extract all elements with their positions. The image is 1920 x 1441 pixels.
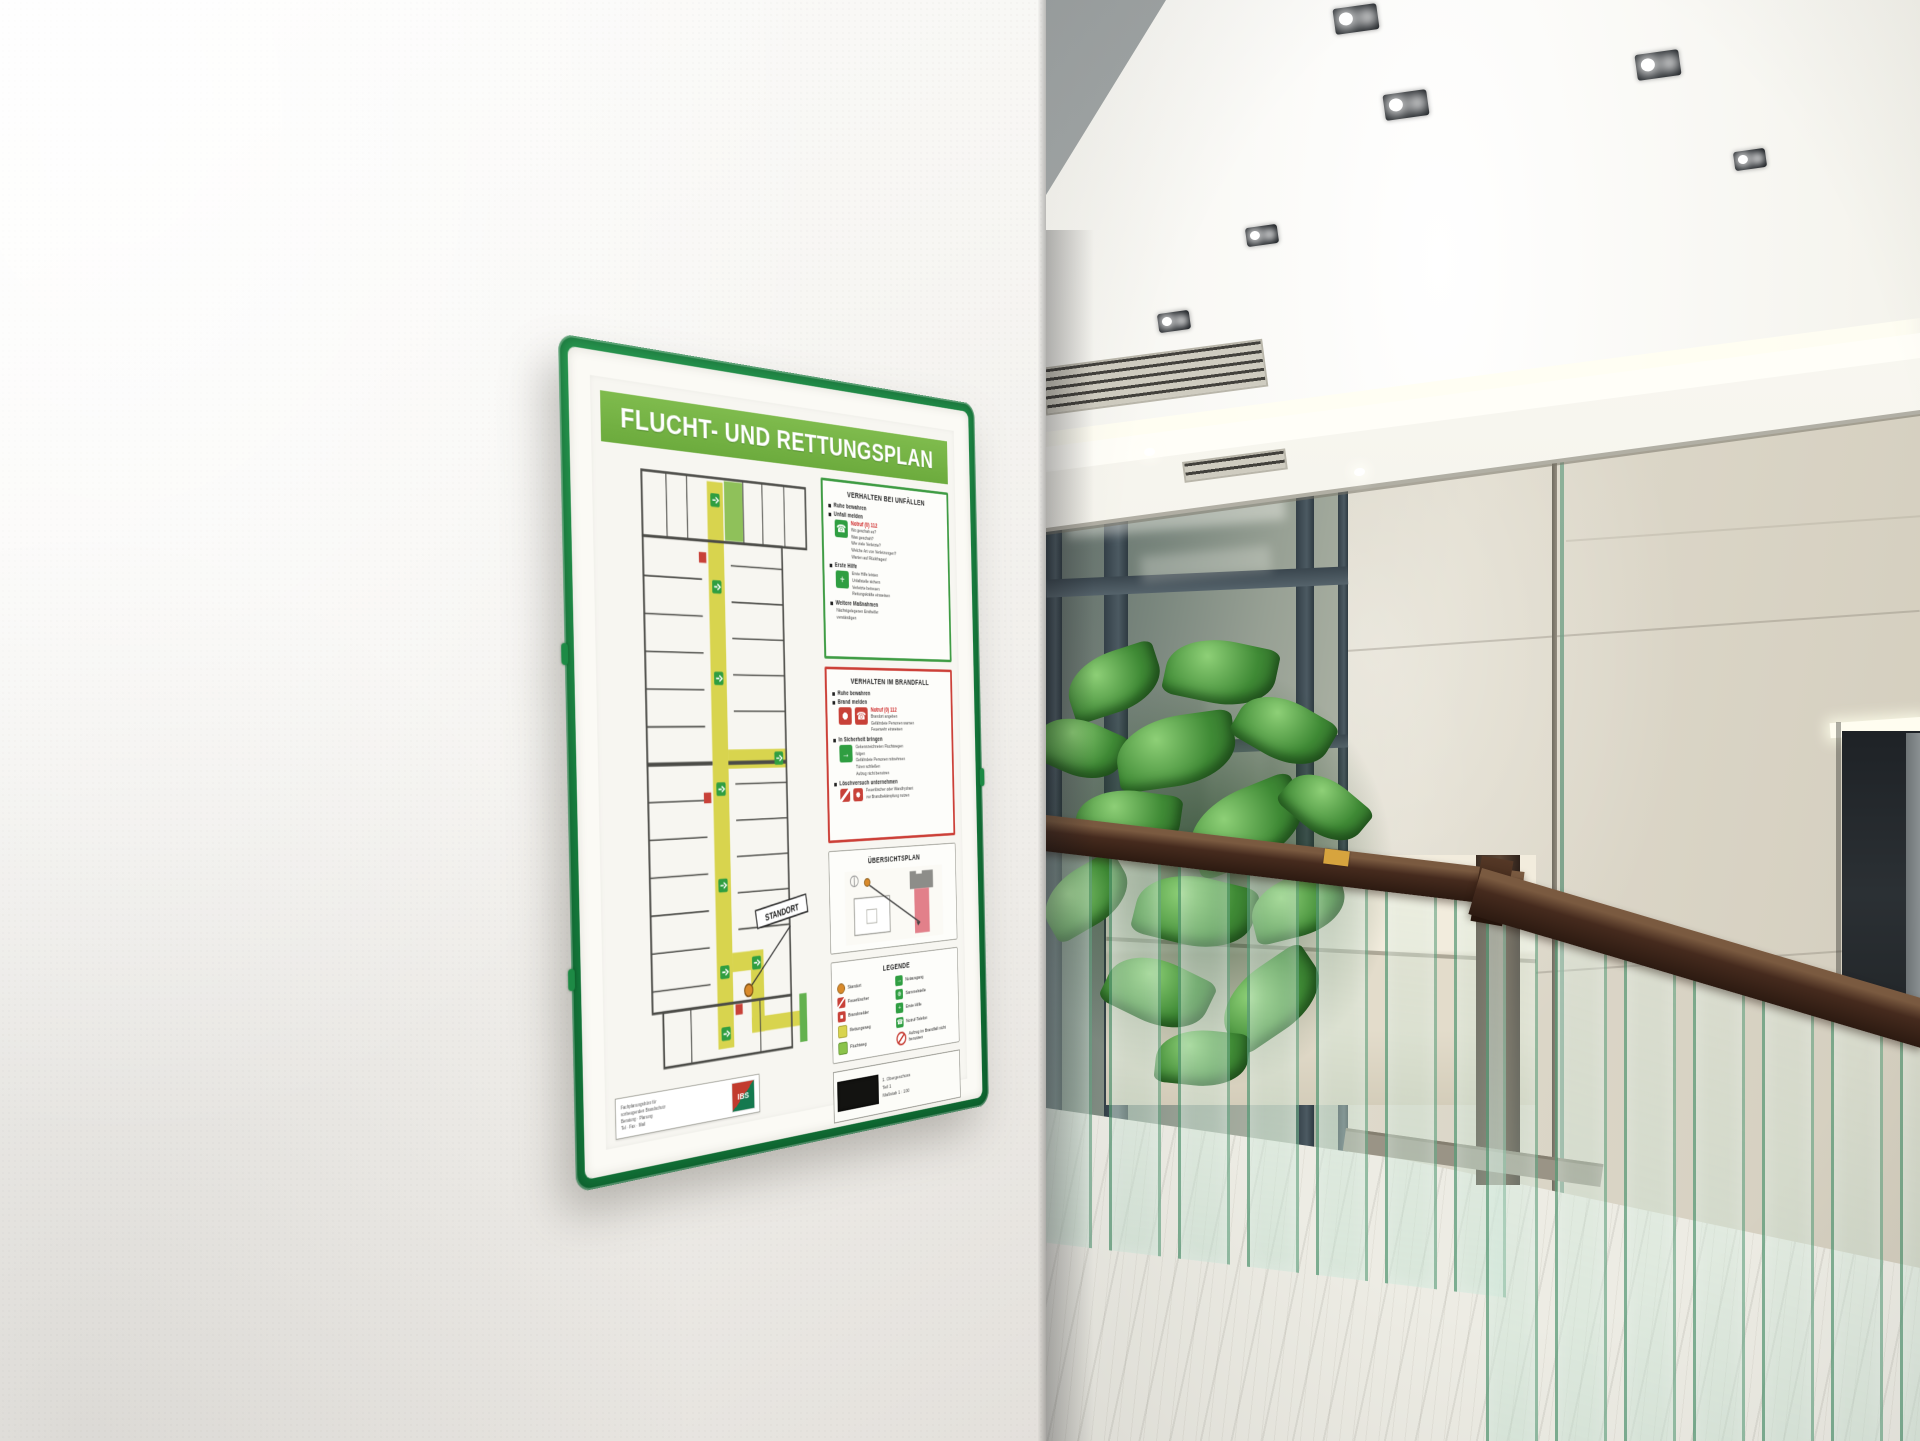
site-footprint (854, 896, 890, 936)
fire-box-heading: VERHALTEN IM BRANDFALL (832, 676, 946, 687)
accident-instructions-box: VERHALTEN BEI UNFÄLLEN Ruhe bewahren Unf… (821, 477, 952, 662)
sammelstelle-icon: ⊕ (896, 989, 904, 1000)
bullet-square (833, 739, 836, 743)
bullet-label: Ruhe bewahren (834, 503, 867, 513)
sign-backing: FLUCHT- UND RETTUNGSPLAN (568, 346, 983, 1180)
hallway-scene (1046, 0, 1920, 1441)
overview-drawing (835, 864, 952, 947)
rettungsweg-icon (838, 1025, 847, 1039)
legend-grid: Standort → Notausgang Feuerlöscher (837, 968, 954, 1056)
photo-hallway-with-escape-plan: FLUCHT- UND RETTUNGSPLAN (0, 0, 1920, 1441)
first-aid-icon: + (836, 571, 849, 589)
notausgang-icon: → (895, 975, 903, 986)
floor-plan: STANDORT (601, 451, 826, 1101)
legend-label: Standort (848, 983, 862, 991)
bullet-square (829, 513, 832, 517)
site-plan (835, 864, 952, 947)
fire-extinguisher-icon (840, 789, 850, 803)
frame-clip (980, 768, 985, 786)
erste-hilfe-icon: + (896, 1002, 904, 1013)
bullet-square (830, 564, 833, 568)
highlighted-room (724, 481, 743, 542)
scale-bar-block (837, 1074, 879, 1112)
icon-row: Feuerlöscher oder Wandhydrant zur Brandb… (840, 785, 948, 802)
bullet-label: Ruhe bewahren (838, 691, 871, 697)
fluchtweg-icon (838, 1041, 847, 1055)
sign-perspective-wrap: FLUCHT- UND RETTUNGSPLAN (558, 333, 989, 1193)
legend-label: Fluchtweg (850, 1041, 867, 1050)
standort-dot-overview (864, 878, 870, 886)
plan-content: STANDORT VERHALTEN BEI UNFÄLLEN (591, 450, 967, 1171)
bullet-item: In Sicherheit bringen (833, 736, 947, 743)
feuerloescher-icon (837, 997, 845, 1009)
emergency-number: Notruf (0) 112 (871, 707, 914, 713)
legend-label: Rettungsweg (850, 1024, 871, 1033)
brandmelder-icon (838, 1011, 846, 1023)
scene-vignette (1046, 0, 1920, 1441)
fire-alarm-icon (839, 707, 852, 725)
bullet-square (832, 701, 835, 705)
emergency-phone-icon: ☎ (835, 519, 848, 538)
icon-row: → Gekennzeichneten Fluchtwegen folgen Ge… (839, 743, 947, 778)
bullet-square (830, 602, 833, 606)
standort-label: STANDORT (755, 894, 807, 928)
wall-corner (1038, 0, 1046, 1441)
frame-clip (561, 643, 568, 665)
aufzug-verbot-icon (896, 1031, 906, 1046)
legend-label: Aufzug im Brandfall nicht benutzen (909, 1024, 954, 1043)
bullet-square (828, 504, 831, 508)
instruction-details: Gekennzeichneten Fluchtwegen folgen Gefä… (856, 744, 906, 778)
highlighted-building-part (914, 887, 930, 933)
bullet-square (832, 692, 835, 696)
hydrant-icon (853, 788, 863, 801)
instruction-details: Feuerlöscher oder Wandhydrant zur Brandb… (866, 787, 913, 802)
legend-label: Feuerlöscher (848, 996, 869, 1005)
standort-dot (744, 984, 753, 997)
exit-sign-icon: → (839, 745, 852, 763)
bullet-label: In Sicherheit bringen (838, 737, 882, 744)
bullet-square (834, 783, 837, 787)
ibs-logo: IBS (731, 1079, 755, 1113)
bullet-label: Erste Hilfe (835, 563, 857, 571)
exit-bar (799, 993, 807, 1042)
bullet-label: Brand melden (838, 699, 868, 705)
bullet-item: Ruhe bewahren (832, 690, 946, 697)
legend-label: Sammelstelle (905, 988, 925, 997)
legend-label: Brandmelder (848, 1010, 869, 1019)
floor-plan-drawing: STANDORT (601, 451, 826, 1101)
legend-label: Notausgang (905, 974, 923, 982)
legend-box: LEGENDE Standort → Notausgang (831, 947, 960, 1064)
bullet-label: Weitere Maßnahmen (836, 600, 879, 609)
instruction-column: VERHALTEN BEI UNFÄLLEN Ruhe bewahren Unf… (821, 477, 961, 1123)
fire-instructions-box: VERHALTEN IM BRANDFALL Ruhe bewahren Bra… (824, 667, 955, 844)
instruction-details: Nächstgelegenen Ersthelfer verständigen (836, 608, 878, 623)
standort-dot-icon (837, 983, 845, 995)
bullet-label: Löschversuch unternehmen (839, 779, 897, 787)
overview-plan-box: ÜBERSICHTSPLAN (828, 843, 957, 955)
legend-label: Erste Hilfe (906, 1002, 922, 1010)
instruction-details: Brandort angeben Gefährdete Personen war… (871, 714, 914, 734)
fire-phone-icon: ☎ (855, 707, 868, 724)
plan-info-lines: 1. Obergeschoss Teil 1 Maßstab 1 : 100 (882, 1072, 911, 1101)
instruction-details: Wo geschah es? Was geschah? Wie viele Ve… (851, 528, 896, 565)
instruction-details: Erste Hilfe leisten Unfallstelle sichern… (852, 572, 890, 601)
frame-clip (568, 969, 575, 992)
plan-paper: FLUCHT- UND RETTUNGSPLAN (590, 375, 967, 1150)
legend-label: Notruf-Telefon (906, 1015, 927, 1024)
icon-row: ☎ Notruf (0) 112 Brandort angeben Gefähr… (839, 707, 947, 734)
notruf-telefon-icon: ☎ (896, 1017, 904, 1028)
bullet-item: Brand melden (832, 699, 946, 706)
